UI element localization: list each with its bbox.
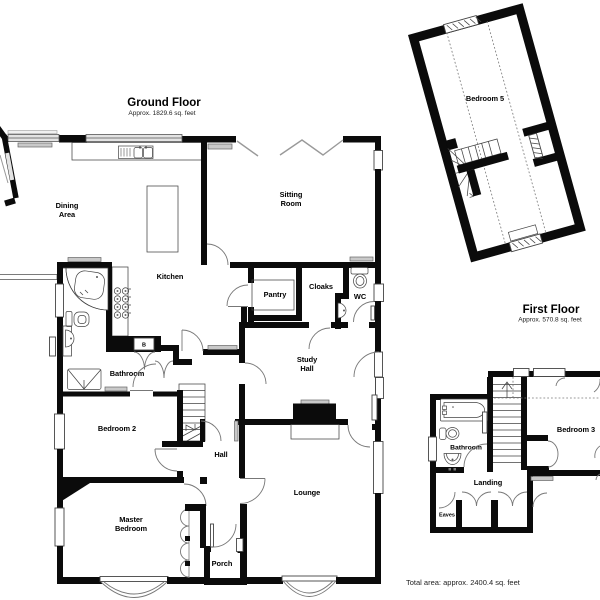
svg-text:Eaves: Eaves xyxy=(439,513,455,519)
svg-text:WC: WC xyxy=(354,292,367,301)
svg-text:Landing: Landing xyxy=(474,478,503,487)
svg-text:Bathroom: Bathroom xyxy=(110,369,145,378)
svg-text:Approx. 570.8 sq. feet: Approx. 570.8 sq. feet xyxy=(518,317,582,324)
svg-text:Approx. 1829.6 sq. feet: Approx. 1829.6 sq. feet xyxy=(128,110,195,117)
svg-text:Lounge: Lounge xyxy=(294,488,320,497)
svg-text:First Floor: First Floor xyxy=(523,304,580,316)
svg-text:Bedroom 2: Bedroom 2 xyxy=(98,424,136,433)
svg-text:Hall: Hall xyxy=(214,450,227,459)
svg-text:Porch: Porch xyxy=(212,559,233,568)
svg-text:Sitting: Sitting xyxy=(280,190,303,199)
svg-text:Hall: Hall xyxy=(300,364,313,373)
svg-text:Area: Area xyxy=(59,210,76,219)
svg-text:Bathroom: Bathroom xyxy=(450,445,482,452)
svg-text:Kitchen: Kitchen xyxy=(157,272,184,281)
svg-text:Dining: Dining xyxy=(56,201,79,210)
svg-text:Bedroom 5: Bedroom 5 xyxy=(466,94,504,103)
svg-text:B: B xyxy=(142,343,146,349)
svg-text:Ground Floor: Ground Floor xyxy=(127,97,201,109)
svg-text:Pantry: Pantry xyxy=(264,290,288,299)
svg-text:Total area: approx. 2400.4 sq.: Total area: approx. 2400.4 sq. feet xyxy=(406,578,521,587)
svg-text:Bedroom 3: Bedroom 3 xyxy=(557,425,595,434)
svg-text:Bedroom: Bedroom xyxy=(115,524,148,533)
svg-text:Study: Study xyxy=(297,355,318,364)
svg-text:Master: Master xyxy=(119,515,143,524)
svg-text:Cloaks: Cloaks xyxy=(309,282,333,291)
svg-text:Room: Room xyxy=(281,199,302,208)
